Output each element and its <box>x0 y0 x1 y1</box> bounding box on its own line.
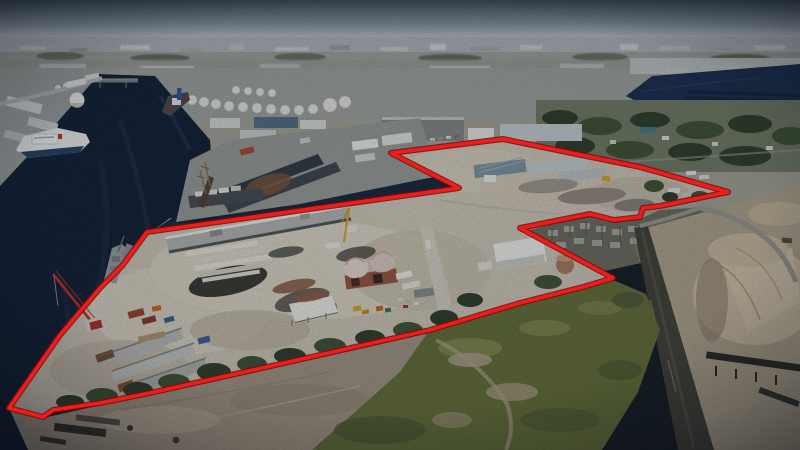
aerial-photo-canvas <box>0 0 800 450</box>
aerial-photo <box>0 0 800 450</box>
film-grain <box>0 0 800 450</box>
